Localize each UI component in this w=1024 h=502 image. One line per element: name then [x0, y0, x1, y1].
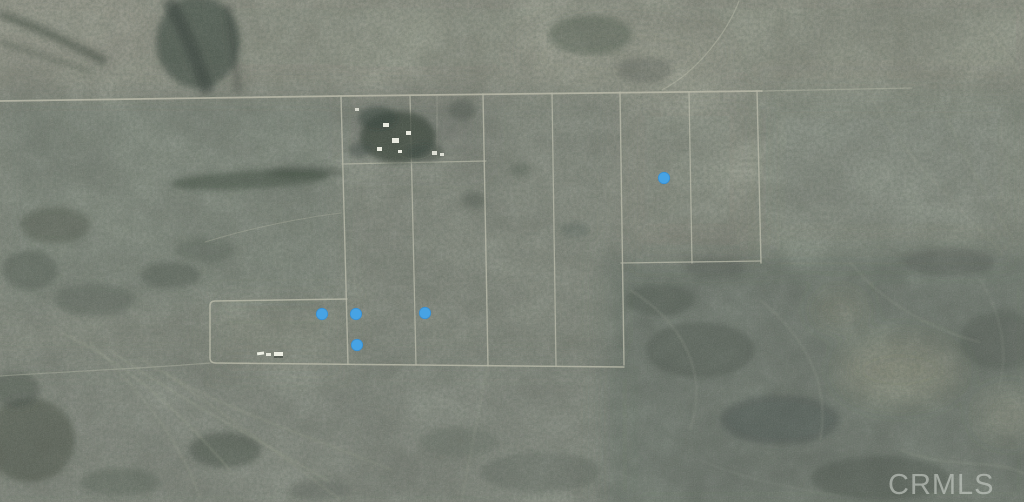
map-marker[interactable] — [316, 308, 327, 319]
map-marker[interactable] — [351, 339, 362, 350]
map-marker[interactable] — [419, 307, 430, 318]
map-marker[interactable] — [658, 172, 669, 183]
markers-layer — [0, 0, 1024, 502]
satellite-map: CRMLS — [0, 0, 1024, 502]
map-marker[interactable] — [350, 308, 361, 319]
